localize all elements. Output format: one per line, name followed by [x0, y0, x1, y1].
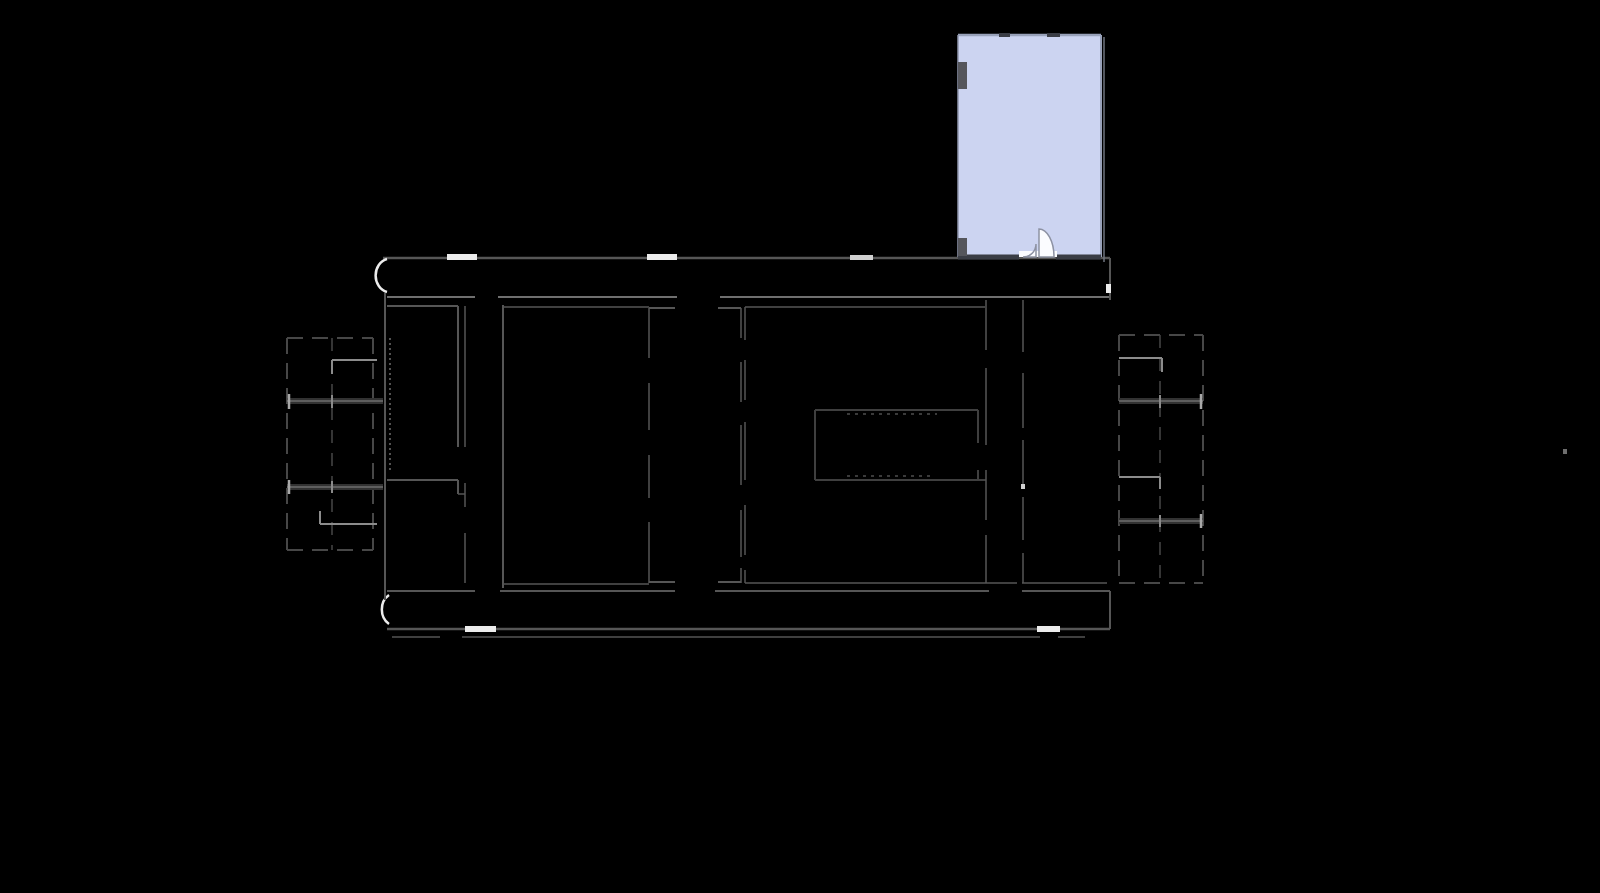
- top-wall-left-cap: [376, 259, 387, 292]
- top-wall-window: [647, 254, 677, 260]
- top-wall-window: [850, 255, 873, 260]
- selected-room-top-tick: [1047, 33, 1060, 37]
- selected-room-wall-block: [958, 62, 967, 89]
- selected-room-wall-block: [958, 238, 967, 256]
- top-wall-right-tick: [1106, 284, 1111, 293]
- wall-white-tick: [1021, 484, 1025, 489]
- bottom-wall-window: [465, 626, 496, 632]
- bottom-wall-window: [1037, 626, 1060, 632]
- selected-room[interactable]: [958, 35, 1101, 257]
- floor-plan-svg: [0, 0, 1600, 893]
- selected-room-top-tick: [999, 33, 1010, 37]
- floor-plan-canvas: [0, 0, 1600, 893]
- cursor-dot: [1563, 449, 1567, 454]
- top-wall-window: [447, 254, 477, 260]
